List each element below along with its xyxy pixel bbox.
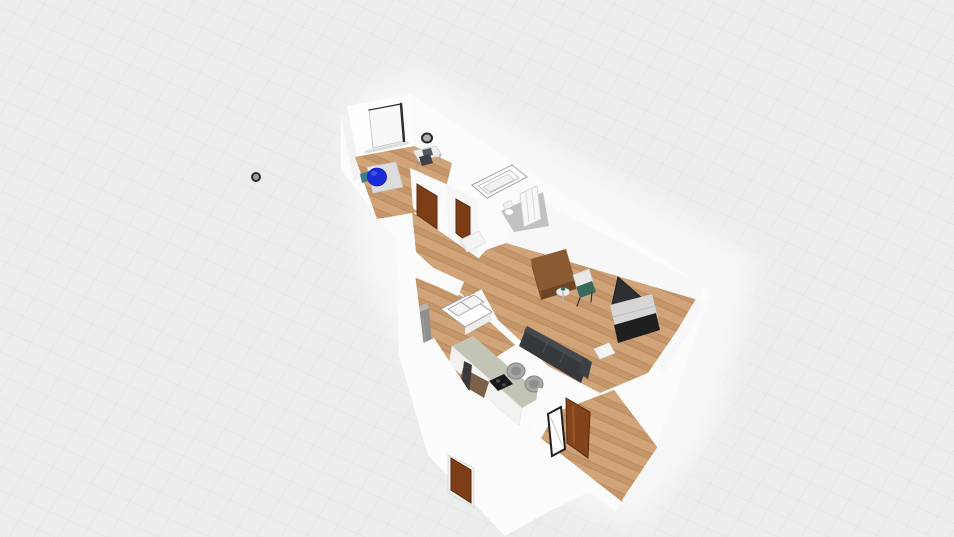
floorplan-canvas[interactable] bbox=[0, 0, 954, 537]
wall-mirror[interactable] bbox=[422, 134, 432, 143]
table-cup bbox=[561, 287, 566, 291]
scene-marker[interactable] bbox=[252, 173, 260, 181]
blue-ball-highlight bbox=[371, 171, 377, 176]
blue-ball[interactable] bbox=[368, 168, 387, 186]
bottomroom-door-panel bbox=[573, 406, 574, 442]
burner-2 bbox=[502, 383, 506, 386]
burner-1 bbox=[496, 379, 500, 382]
bathroom-shelf[interactable] bbox=[520, 186, 541, 227]
toilet[interactable] bbox=[505, 209, 514, 216]
bedroom-window[interactable] bbox=[369, 104, 404, 148]
floorplan-viewport[interactable] bbox=[0, 0, 954, 537]
stool-1-seat bbox=[511, 367, 521, 376]
stool-2-seat bbox=[529, 380, 539, 389]
